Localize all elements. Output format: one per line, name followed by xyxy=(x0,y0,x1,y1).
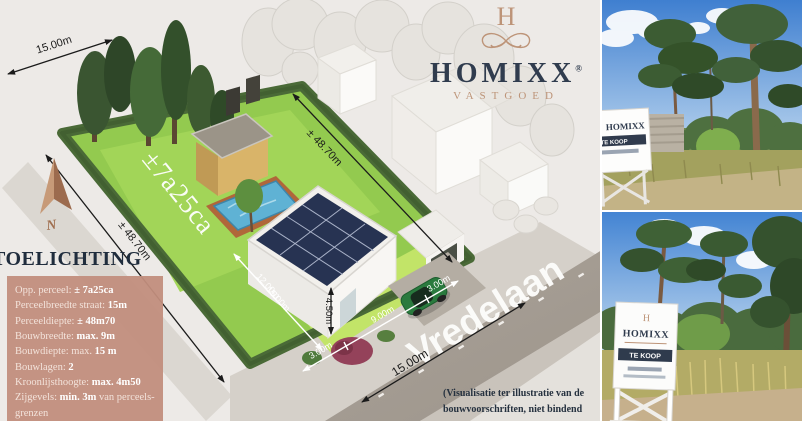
spec-row: Bouwdiepte: max. 15 m xyxy=(15,344,155,359)
toelichting-title: TOELICHTING xyxy=(0,248,172,271)
real-estate-visualisation-page: ±7a25ca Vredelaan 15.00m ± 48.70m ± 48.7… xyxy=(0,0,802,421)
toelichting-block: TOELICHTING Opp. perceel: ± 7a25ca Perce… xyxy=(0,248,172,421)
te-koop-label: TE KOOP xyxy=(629,353,661,361)
sign-monogram: H xyxy=(643,313,651,324)
disclaimer-text: (Visualisatie ter illustratie van de bou… xyxy=(443,386,600,417)
spec-row: Kroonlijsthoogte: max. 4m50 xyxy=(15,375,155,390)
photo-top: HOMIXX TE KOOP xyxy=(602,0,802,210)
spec-row: Perceelbreedte straat: 15m xyxy=(15,298,155,313)
svg-text:H: H xyxy=(497,3,516,31)
brand-subtitle: VASTGOED xyxy=(416,90,596,102)
photo-top-scene: HOMIXX TE KOOP xyxy=(602,0,802,210)
spec-row: Bouwlagen: 2 xyxy=(15,360,155,375)
toelichting-panel: Opp. perceel: ± 7a25ca Perceelbreedte st… xyxy=(7,276,163,421)
spec-row: Bouwbreedte: max. 9m xyxy=(15,329,155,344)
brand-name: HOMIXX® xyxy=(416,60,596,88)
homixx-monogram-icon: H xyxy=(471,3,541,55)
registered-mark: ® xyxy=(575,64,582,74)
homixx-logo: H HOMIXX® VASTGOED xyxy=(416,3,596,102)
photo-bottom: H HOMIXX TE KOOP xyxy=(602,212,802,421)
render-visualization: ±7a25ca Vredelaan 15.00m ± 48.70m ± 48.7… xyxy=(0,0,600,421)
spec-row: Opp. perceel: ± 7a25ca xyxy=(15,283,155,298)
sign-brand: HOMIXX xyxy=(623,328,670,341)
svg-text:HOMIXX: HOMIXX xyxy=(606,120,646,132)
photo-column: HOMIXX TE KOOP xyxy=(600,0,802,421)
house-height-label: 4.50m xyxy=(323,298,334,324)
spec-row: Perceeldiepte: ± 48m70 xyxy=(15,314,155,329)
photo-bottom-scene: H HOMIXX TE KOOP xyxy=(602,212,802,421)
spec-row: Zijgevels: min. 3m van perceels-grenzen xyxy=(15,390,155,421)
